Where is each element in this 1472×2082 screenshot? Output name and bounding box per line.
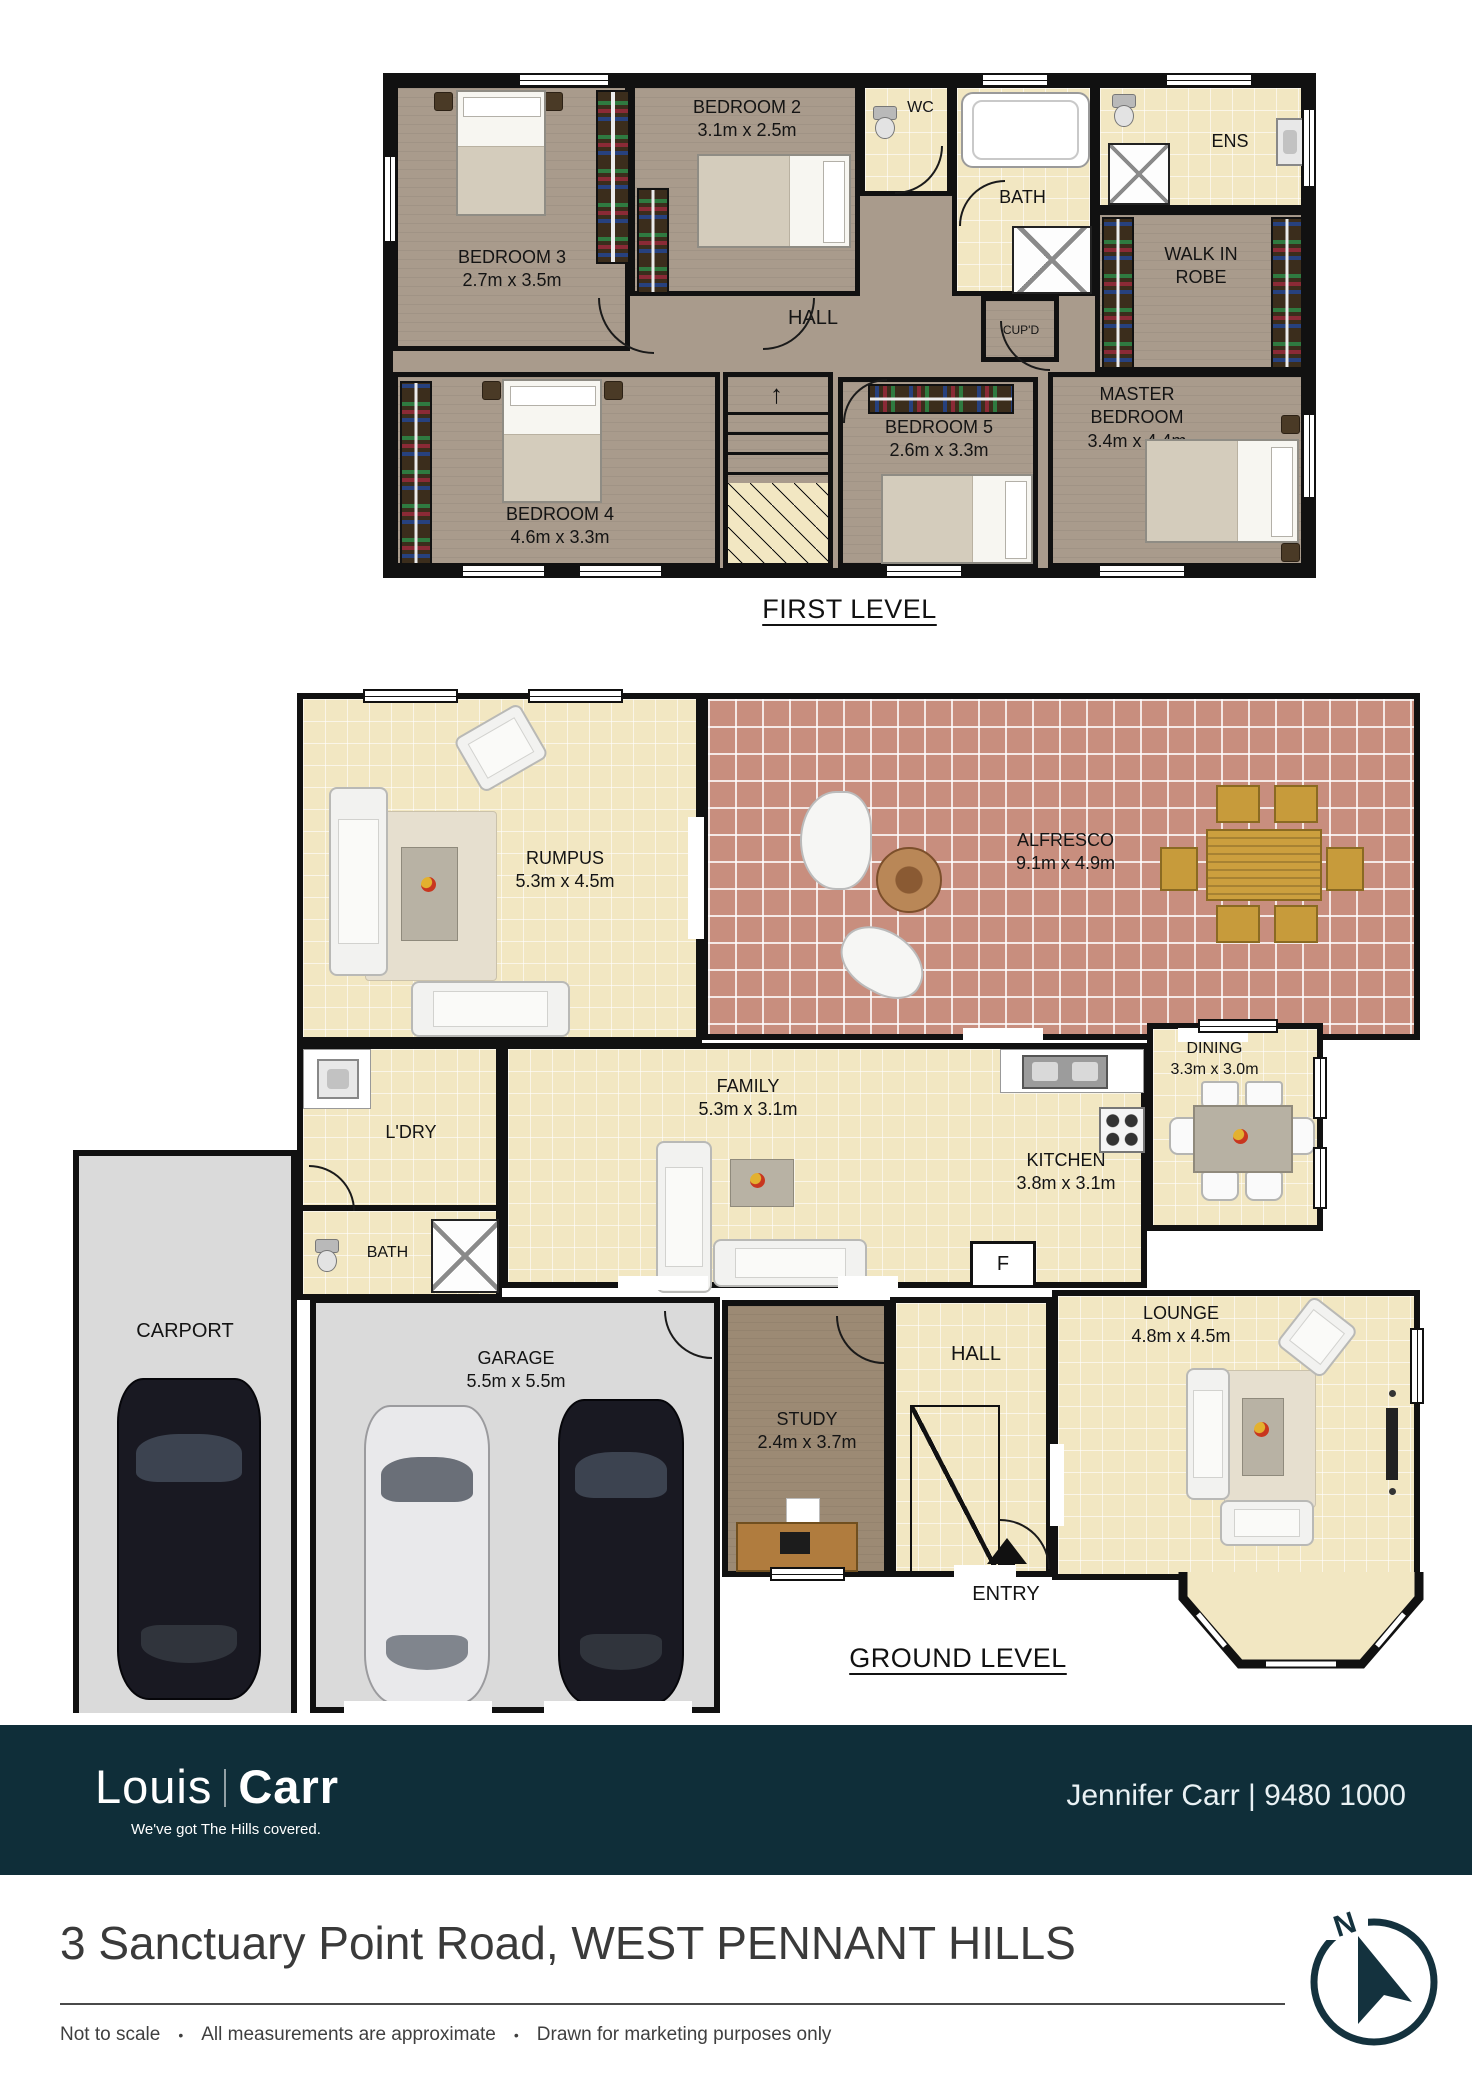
coffee-table-icon [1242,1398,1284,1476]
window [770,1567,845,1581]
room-label: LOUNGE4.8m x 4.5m [1076,1302,1286,1349]
room-label: RUMPUS5.3m x 4.5m [465,847,665,894]
window [1165,73,1253,87]
room-study: STUDY2.4m x 3.7m [722,1300,890,1577]
opening [1050,1444,1064,1526]
nightstand-icon [434,92,453,111]
window [1098,564,1186,578]
fridge-icon: F [970,1241,1036,1288]
disclaimer-item: Not to scale [60,2024,160,2045]
planter-icon [876,847,942,913]
ground-level-caption: GROUND LEVEL [808,1643,1108,1674]
window [528,689,623,703]
room-walk-in-robe: WALK IN ROBE [1095,210,1306,372]
room-alfresco: ALFRESCO9.1m x 4.9m [702,693,1420,1040]
door-arc [1000,1519,1050,1569]
car-icon [558,1399,684,1705]
room-label: FAMILY5.3m x 3.1m [648,1075,848,1122]
room-label: BEDROOM 44.6m x 3.3m [460,503,660,550]
nightstand-icon [1281,543,1300,562]
room-label: WALK IN ROBE [1155,243,1247,290]
room-carport: CARPORT [73,1150,297,1713]
door-arc [763,298,815,350]
chair-icon [786,1498,820,1524]
room-bath-first: BATH [952,83,1095,296]
room-label: STUDY2.4m x 3.7m [736,1408,878,1455]
speaker-icon [1389,1488,1396,1495]
coffee-table-icon [401,847,458,941]
window [461,564,546,578]
disclaimer-item: All measurements are approximate [201,2024,496,2045]
room-bedroom-3: BEDROOM 32.7m x 3.5m [393,83,630,351]
room-label: L'DRY [351,1121,471,1144]
sofa-icon [1186,1368,1230,1500]
door-arc [836,1316,884,1364]
room-garage: GARAGE5.5m x 5.5m [310,1297,720,1713]
room-label: WC [893,98,948,119]
first-level-plan: BEDROOM 32.7m x 3.5m BEDROOM 23.1m x 2.5… [383,73,1316,578]
toilet-icon [873,106,895,138]
room-label: BATH [345,1243,430,1264]
room-label: BEDROOM 52.6m x 3.3m [855,416,1023,463]
room-label: ALFRESCO9.1m x 4.9m [963,829,1168,876]
room-label: KITCHEN3.8m x 3.1m [956,1149,1176,1196]
room-rumpus: RUMPUS5.3m x 4.5m [297,693,702,1043]
decor-icon [750,1173,765,1188]
room-label: CARPORT [95,1318,275,1344]
door-arc [664,1311,712,1359]
wardrobe-icon [1102,217,1134,369]
armchair-icon [1275,1295,1359,1380]
agency-logo: LouisCarr We've got The Hills covered. [95,1759,339,1838]
brand-footer: LouisCarr We've got The Hills covered. J… [0,1725,1472,1875]
floorplan-page: BEDROOM 32.7m x 3.5m BEDROOM 23.1m x 2.5… [0,0,1472,2082]
window [1313,1057,1327,1119]
property-address: 3 Sanctuary Point Road, WEST PENNANT HIL… [60,1916,1420,1970]
logo-tagline: We've got The Hills covered. [131,1821,339,1838]
room-label: HALL [926,1341,1026,1367]
window [1313,1147,1327,1209]
room-family-kitchen: FAMILY5.3m x 3.1m KITCHEN3.8m x 3.1m F [502,1043,1147,1288]
disclaimer: Not to scaleAll measurements are approxi… [60,2024,831,2046]
outdoor-lounge-icon [800,791,872,890]
stove-icon [1099,1107,1145,1153]
room-laundry: L'DRY [297,1043,502,1215]
logo-divider [224,1769,226,1807]
decor-icon [1233,1129,1248,1144]
decor-icon [1254,1422,1269,1437]
logo-text-bold: Carr [238,1760,339,1813]
stair-void [728,483,828,563]
window [1302,413,1316,499]
window [1198,1019,1278,1033]
toilet-icon [1112,94,1134,126]
opening [618,1276,708,1290]
garage-door-opening [544,1701,692,1715]
stairwell-first [723,372,833,568]
door-arc [1000,321,1050,371]
room-label: DINING3.3m x 3.0m [1157,1039,1272,1081]
window [1302,108,1316,188]
car-icon [117,1378,261,1700]
door-arc [309,1165,355,1211]
entry-door-opening [954,1565,1016,1579]
nightstand-icon [544,92,563,111]
entry-label: ENTRY [931,1581,1081,1607]
room-ensuite: ENS [1095,83,1306,210]
bay-window [1178,1572,1424,1676]
toilet-icon [315,1239,337,1271]
window [363,689,458,703]
window [518,73,610,87]
sink-icon [317,1059,359,1099]
opening [838,1276,898,1290]
nightstand-icon [604,381,623,400]
room-label: ENS [1185,130,1275,153]
room-hall-ground: HALL [890,1297,1052,1577]
first-level-caption: FIRST LEVEL [383,594,1316,625]
stairs-icon [728,395,828,483]
window [981,73,1049,87]
tv-icon [1386,1408,1398,1480]
decor-icon [421,877,436,892]
ground-level-plan: RUMPUS5.3m x 4.5m ALFRESCO9.1m x 4.9m [73,693,1420,1713]
outdoor-lounge-icon [829,914,937,1011]
room-lounge: LOUNGE4.8m x 4.5m [1052,1290,1420,1580]
bed-icon [456,90,546,216]
bed-icon [1145,439,1299,543]
room-label: BEDROOM 32.7m x 3.5m [406,246,618,293]
chair-icon [1201,1171,1239,1201]
garage-door-opening [344,1701,492,1715]
divider-rule [60,2003,1285,2005]
bed-icon [697,154,851,248]
agent-contact: Jennifer Carr | 9480 1000 [1066,1779,1406,1813]
bullet-separator [496,2024,537,2045]
wardrobe-icon [868,384,1014,414]
bullet-separator [160,2024,201,2045]
shower-icon [431,1219,499,1293]
shower-icon [1108,143,1170,205]
shower-icon [1012,226,1092,294]
car-icon [364,1405,490,1705]
room-label: BEDROOM 23.1m x 2.5m [647,96,847,143]
bed-icon [502,379,602,503]
sofa-icon [411,981,570,1037]
window [1410,1328,1424,1404]
speaker-icon [1389,1390,1396,1397]
window [383,155,397,243]
wardrobe-icon [1271,217,1303,369]
sink-icon [1276,118,1304,166]
window [885,564,963,578]
outdoor-chair-icon [1160,847,1198,891]
bathtub-icon [961,92,1090,168]
laptop-icon [780,1532,810,1554]
sofa-icon [329,787,388,976]
room-bedroom-2: BEDROOM 23.1m x 2.5m [630,83,860,296]
wardrobe-icon [400,381,432,565]
nightstand-icon [1281,415,1300,434]
room-bath-ground: BATH [297,1205,502,1300]
compass-icon: N [1292,1896,1456,2060]
outdoor-chair-icon [1326,847,1364,891]
window [578,564,663,578]
fridge-label: F [997,1253,1009,1276]
room-label: GARAGE5.5m x 5.5m [416,1347,616,1394]
outdoor-chair-icon [1216,785,1260,823]
wardrobe-icon [637,188,669,294]
sofa-icon [1220,1500,1314,1546]
room-dining: DINING3.3m x 3.0m [1147,1023,1323,1231]
disclaimer-item: Drawn for marketing purposes only [537,2024,832,2045]
room-bedroom-4: BEDROOM 44.6m x 3.3m [393,372,720,568]
sofa-icon [656,1141,712,1293]
outdoor-chair-icon [1216,905,1260,943]
logo-text-light: Louis [95,1760,212,1813]
wardrobe-icon [596,90,630,264]
chair-icon [1245,1171,1283,1201]
outdoor-chair-icon [1274,905,1318,943]
kitchen-sink-icon [1022,1055,1108,1089]
door-arc [895,146,943,194]
nightstand-icon [482,381,501,400]
room-master-bedroom: MASTER BEDROOM3.4m x 4.4m [1048,372,1306,568]
armchair-icon [453,702,550,794]
bed-icon [881,474,1033,564]
opening [963,1028,1043,1042]
opening [688,817,704,939]
outdoor-chair-icon [1274,785,1318,823]
room-wc: WC [860,83,952,196]
outdoor-table-icon [1206,829,1322,901]
